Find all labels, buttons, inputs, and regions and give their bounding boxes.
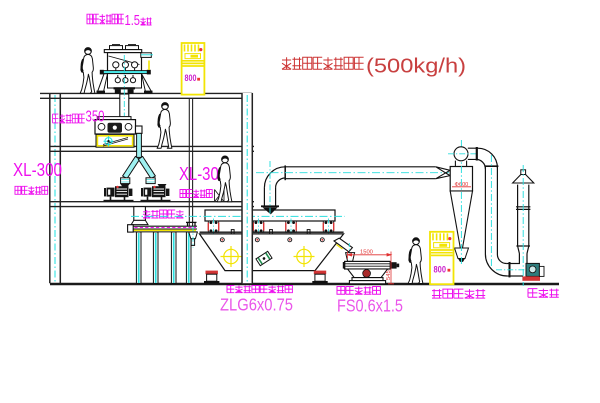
svg-text:350: 350	[86, 109, 105, 126]
svg-text:FS0.6x1.5: FS0.6x1.5	[337, 296, 403, 316]
svg-text:(500kg/h): (500kg/h)	[366, 56, 466, 78]
svg-text:1500: 1500	[360, 249, 373, 255]
svg-text:1.5: 1.5	[125, 13, 141, 29]
svg-text:XL-300: XL-300	[13, 160, 62, 180]
svg-text:800: 800	[434, 265, 447, 275]
svg-text:ZLG6x0.75: ZLG6x0.75	[220, 295, 293, 315]
svg-text:545: 545	[386, 270, 392, 280]
svg-text:800: 800	[185, 73, 197, 83]
